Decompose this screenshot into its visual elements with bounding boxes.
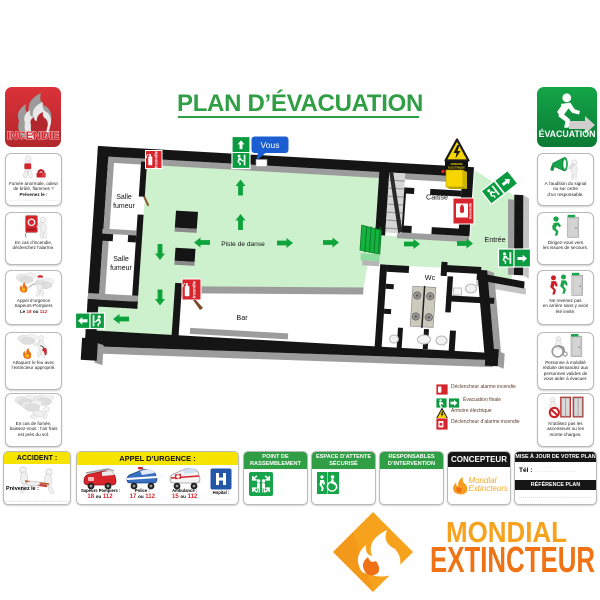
svg-text:Piste de danse: Piste de danse xyxy=(221,241,265,248)
svg-text:Bar: Bar xyxy=(236,313,248,322)
svg-text:Incendie: Incendie xyxy=(192,280,197,298)
svg-text:ÉVACUATION: ÉVACUATION xyxy=(539,129,596,139)
svg-text:Vous: Vous xyxy=(261,140,280,150)
svg-text:Wc: Wc xyxy=(425,273,436,282)
svg-text:EXTINCTEUR: EXTINCTEUR xyxy=(430,539,595,580)
svg-text:Salle: Salle xyxy=(113,256,129,263)
svg-text:fumeur: fumeur xyxy=(110,265,132,272)
svg-text:Incendie: Incendie xyxy=(468,202,473,219)
svg-text:Salle: Salle xyxy=(116,194,132,201)
svg-text:Entrée: Entrée xyxy=(484,235,505,244)
svg-text:ELECTRIQUE: ELECTRIQUE xyxy=(448,165,465,169)
svg-text:Incendie: Incendie xyxy=(153,150,158,168)
svg-text:Caisse: Caisse xyxy=(426,193,448,202)
svg-text:fumeur: fumeur xyxy=(113,203,135,210)
svg-text:INCENDIE: INCENDIE xyxy=(7,130,60,142)
